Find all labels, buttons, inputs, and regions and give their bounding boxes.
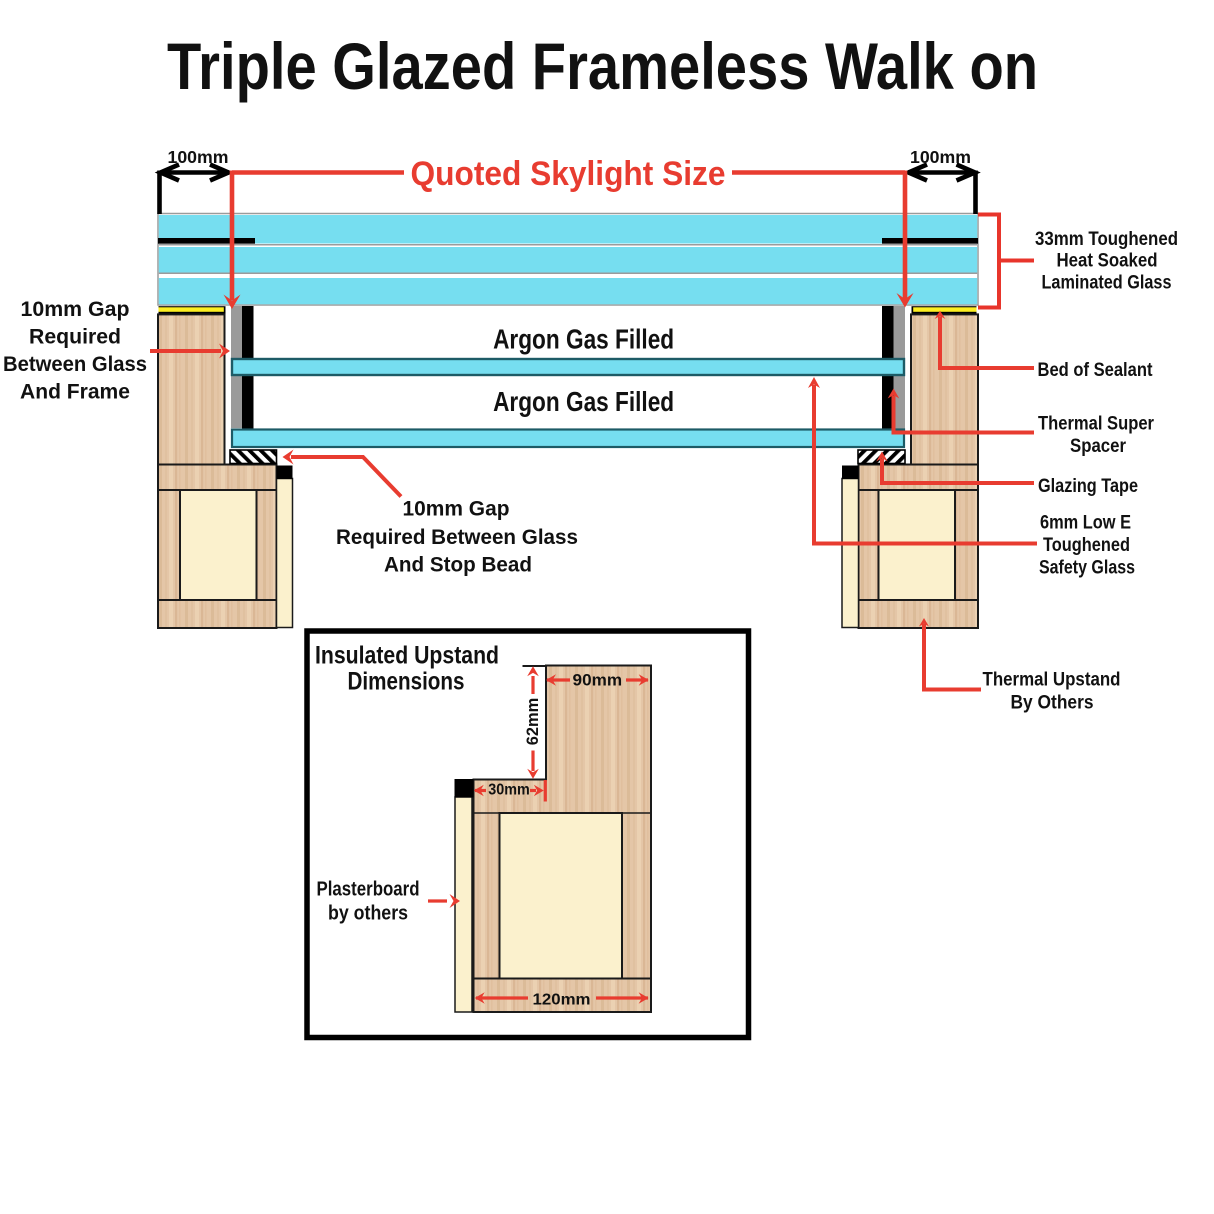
svg-text:Quoted Skylight Size: Quoted Skylight Size bbox=[411, 155, 726, 193]
svg-text:Toughened: Toughened bbox=[1043, 534, 1130, 556]
svg-text:Argon Gas Filled: Argon Gas Filled bbox=[493, 324, 674, 355]
svg-text:Heat Soaked: Heat Soaked bbox=[1057, 250, 1158, 272]
svg-text:Insulated Upstand: Insulated Upstand bbox=[315, 642, 499, 670]
svg-text:Thermal Upstand: Thermal Upstand bbox=[983, 669, 1121, 691]
svg-text:Glazing Tape: Glazing Tape bbox=[1038, 475, 1138, 497]
svg-text:Required: Required bbox=[29, 325, 121, 349]
svg-text:90mm: 90mm bbox=[573, 672, 623, 690]
svg-text:Argon Gas Filled: Argon Gas Filled bbox=[493, 386, 674, 417]
svg-text:Between Glass: Between Glass bbox=[3, 352, 147, 376]
svg-text:62mm: 62mm bbox=[523, 698, 542, 746]
svg-text:100mm: 100mm bbox=[168, 147, 229, 167]
svg-text:33mm Toughened: 33mm Toughened bbox=[1035, 228, 1178, 250]
svg-text:And Stop Bead: And Stop Bead bbox=[384, 553, 532, 577]
svg-text:Laminated Glass: Laminated Glass bbox=[1042, 272, 1172, 294]
svg-text:6mm Low E: 6mm Low E bbox=[1040, 512, 1131, 534]
svg-text:10mm Gap: 10mm Gap bbox=[403, 497, 510, 521]
svg-text:Triple Glazed Frameless Walk o: Triple Glazed Frameless Walk on bbox=[167, 29, 1038, 103]
svg-text:Bed of Sealant: Bed of Sealant bbox=[1038, 359, 1153, 381]
svg-text:Thermal Super: Thermal Super bbox=[1038, 413, 1154, 435]
svg-text:Required Between Glass: Required Between Glass bbox=[336, 525, 578, 549]
svg-text:And Frame: And Frame bbox=[20, 380, 130, 404]
svg-text:Plasterboard: Plasterboard bbox=[317, 878, 420, 901]
svg-text:120mm: 120mm bbox=[533, 992, 591, 1009]
svg-text:30mm: 30mm bbox=[488, 782, 530, 799]
svg-text:Dimensions: Dimensions bbox=[348, 668, 465, 696]
svg-text:By Others: By Others bbox=[1011, 692, 1094, 714]
svg-text:by others: by others bbox=[328, 902, 408, 925]
svg-text:Spacer: Spacer bbox=[1070, 435, 1126, 457]
svg-text:10mm Gap: 10mm Gap bbox=[21, 297, 130, 321]
svg-text:100mm: 100mm bbox=[910, 147, 971, 167]
svg-text:Safety Glass: Safety Glass bbox=[1039, 557, 1135, 579]
